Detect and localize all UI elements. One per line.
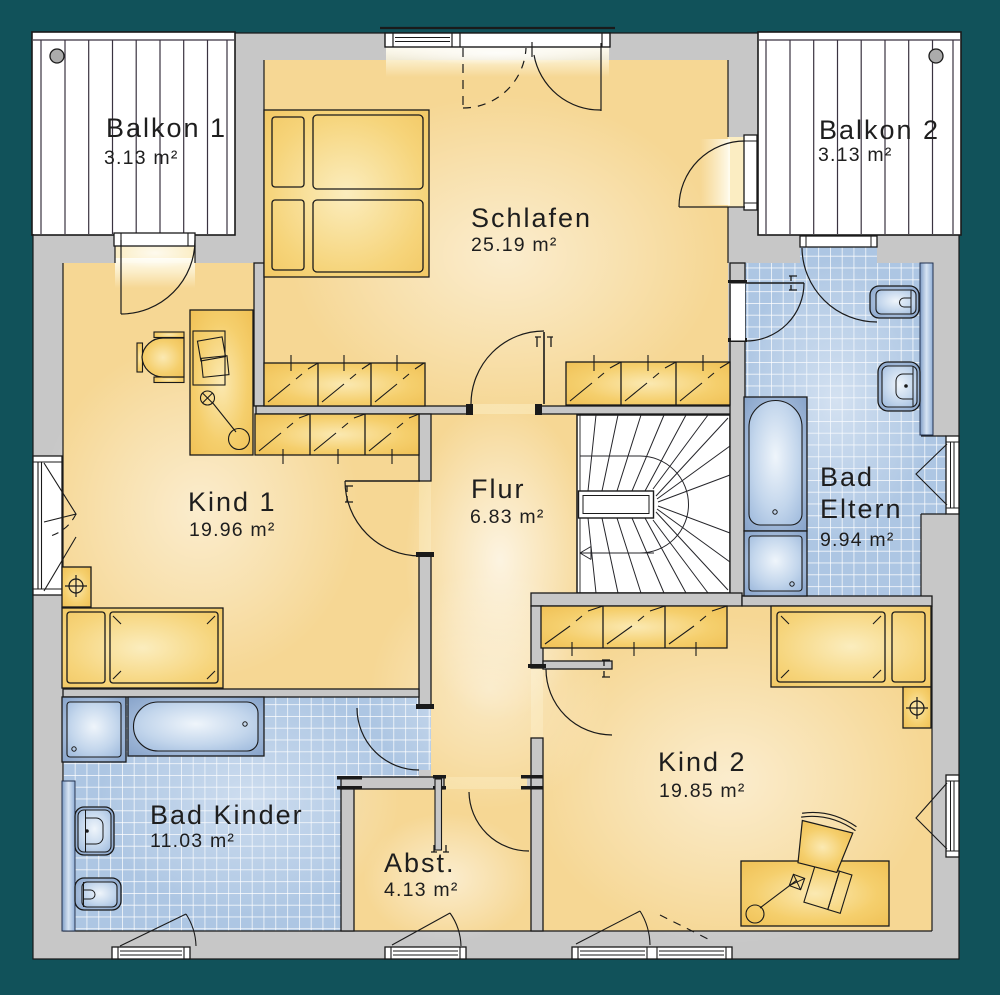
svg-text:Flur: Flur	[471, 474, 526, 504]
svg-text:Eltern: Eltern	[820, 494, 903, 524]
svg-text:25.19 m²: 25.19 m²	[471, 234, 558, 256]
svg-text:Kind 1: Kind 1	[188, 487, 277, 517]
svg-text:11.03 m²: 11.03 m²	[150, 830, 235, 852]
svg-text:Kind 2: Kind 2	[658, 747, 747, 777]
svg-text:3.13 m²: 3.13 m²	[104, 147, 179, 169]
svg-text:Abst.: Abst.	[384, 848, 456, 878]
svg-text:Bad Kinder: Bad Kinder	[150, 800, 304, 830]
svg-text:4.13 m²: 4.13 m²	[384, 879, 459, 901]
svg-text:19.85 m²: 19.85 m²	[659, 780, 746, 802]
svg-text:3.13 m²: 3.13 m²	[818, 144, 893, 166]
svg-text:19.96 m²: 19.96 m²	[189, 519, 276, 541]
svg-text:Bad: Bad	[820, 462, 874, 492]
svg-text:9.94 m²: 9.94 m²	[820, 529, 895, 551]
svg-text:Balkon 2: Balkon 2	[819, 115, 940, 145]
svg-text:Schlafen: Schlafen	[471, 203, 592, 233]
svg-text:Balkon 1: Balkon 1	[106, 113, 227, 143]
svg-text:6.83 m²: 6.83 m²	[470, 506, 545, 528]
